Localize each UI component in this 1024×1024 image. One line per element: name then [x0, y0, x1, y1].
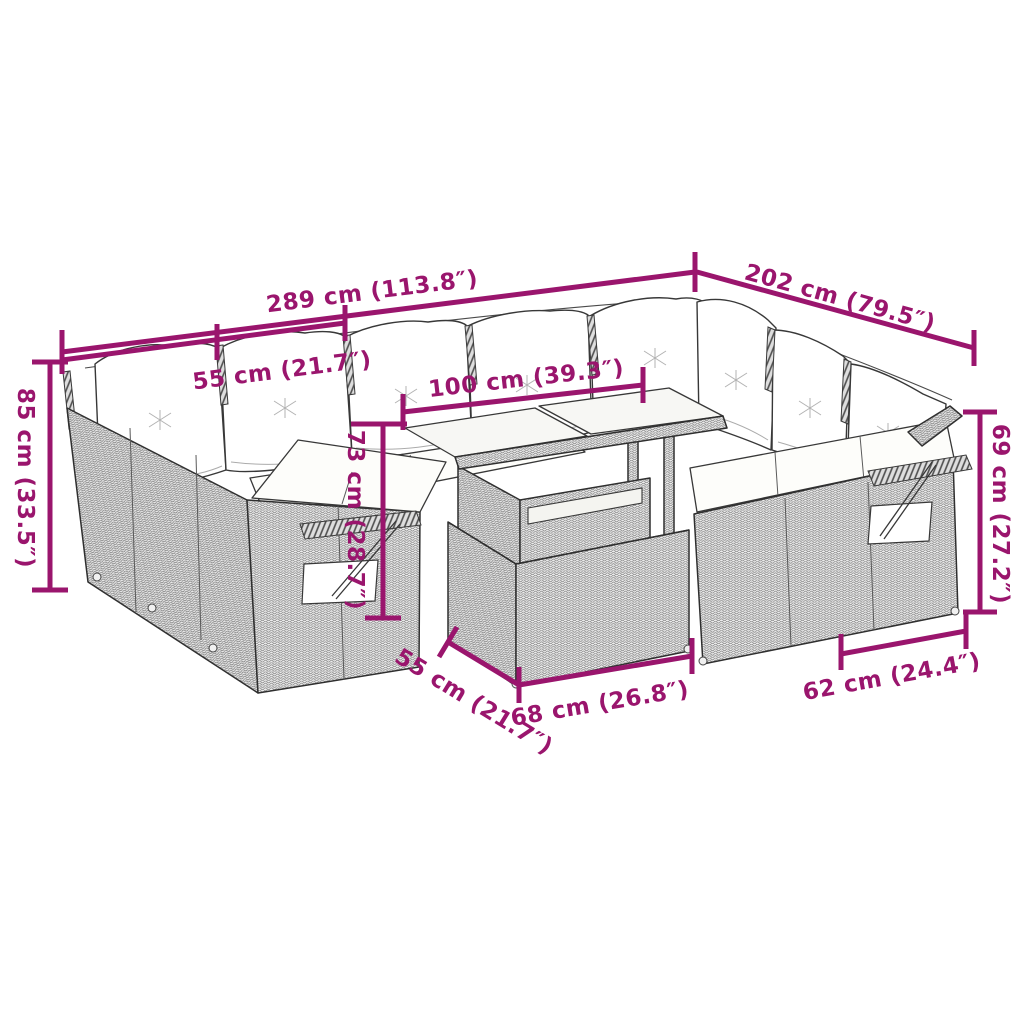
dim-table-height-label: 73 cm (28.7″)	[342, 430, 368, 610]
dim-table-front-width-label: 68 cm (26.8″)	[509, 676, 691, 731]
product-dimension-image: 289 cm (113.8″) 202 cm (79.5″) 55 cm (21…	[0, 0, 1024, 1024]
dim-back-height-label: 85 cm (33.5″)	[12, 388, 38, 568]
dim-back-height: 85 cm (33.5″)	[12, 362, 68, 590]
right-sofa-body	[690, 406, 972, 664]
product-dimension-illustration: 289 cm (113.8″) 202 cm (79.5″) 55 cm (21…	[0, 0, 1024, 1024]
dim-right-back-height-label: 69 cm (27.2″)	[987, 424, 1013, 604]
dim-right-seat-depth-label: 62 cm (24.4″)	[801, 648, 983, 706]
dim-right-back-height: 69 cm (27.2″)	[963, 412, 1013, 612]
